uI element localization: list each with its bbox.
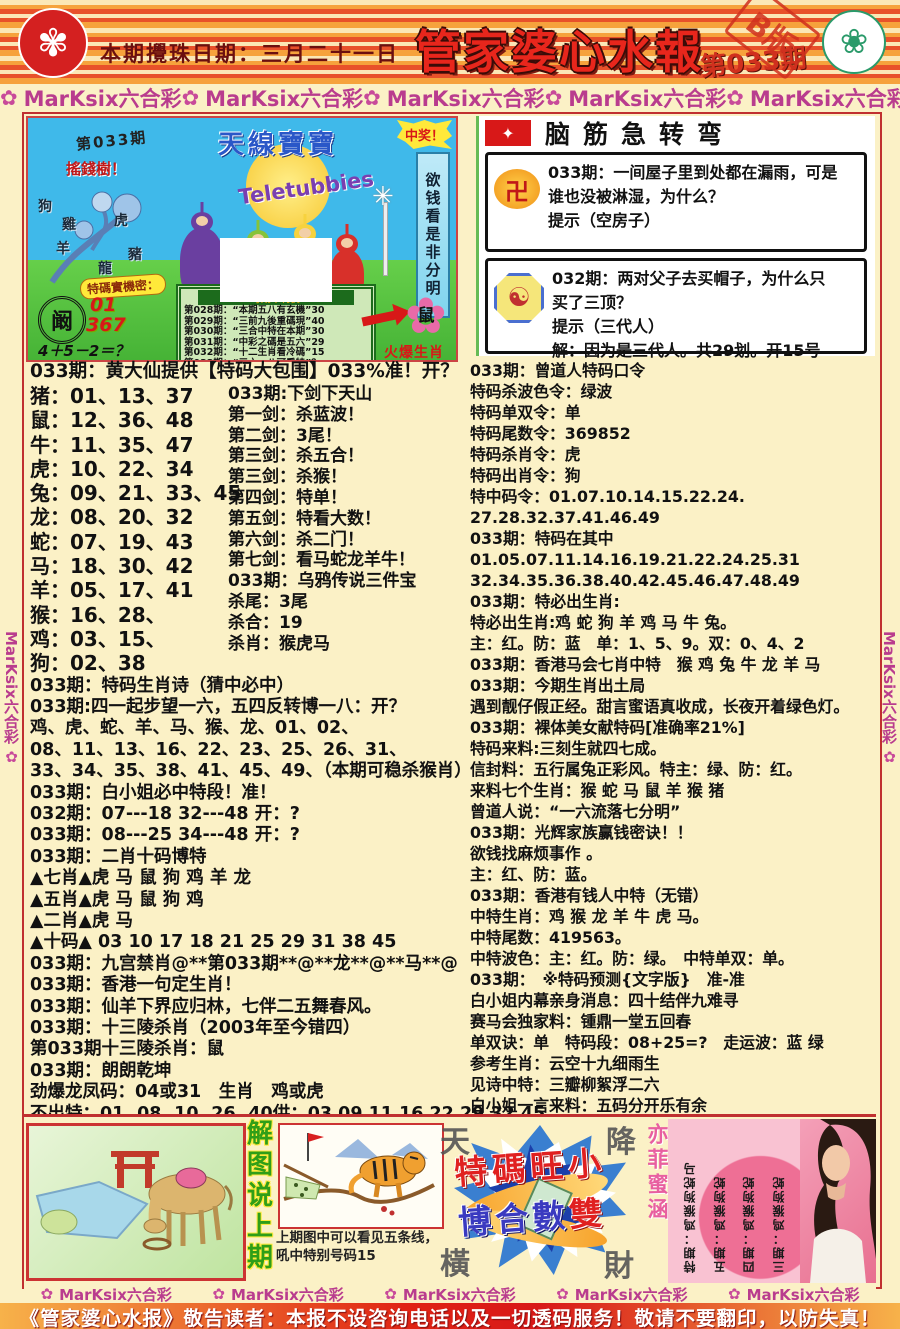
flower-icon: ✿ [881, 748, 899, 766]
slogan-starburst: 天 降 橫 財 特碼旺小 博合數雙 [440, 1119, 642, 1285]
plaque-rows: 第028期：“本期五八有玄機”30第029期：“三前九後重碼現”40第030期：… [184, 306, 368, 362]
tree-zodiac-char: 豬 [128, 244, 142, 264]
explain-char: 期 [247, 1243, 273, 1274]
zodiac-number-row: 鼠：12、36、48 [30, 408, 228, 432]
tip-line: 33、34、35、38、41、45、49、（本期可稳杀猴肖） [30, 761, 462, 782]
hongkong-emblem-icon: ✾ [18, 8, 88, 78]
riddle-text: 032期：两对父子去买帽子，为什么只买了三顶？提示（三代人）解：因为是三代人。共… [552, 267, 825, 345]
tip-line: 白小姐内幕亲身消息：四十结伴九难寻 [470, 990, 874, 1011]
rotated-tip-column: 三期：鸡猴狗蛇 [770, 1123, 787, 1273]
hot-zodiac-label: 火爆生肖 [384, 342, 444, 362]
paper-title: 管家婆心水報 [415, 16, 703, 82]
tip-line: 特码单双令：单 [470, 402, 874, 423]
tip-line: 白小姐一言来料：五码分开乐有余 [470, 1095, 874, 1116]
flower-icon: ✿ [40, 1285, 53, 1303]
flower-icon: ✿ [212, 1285, 225, 1303]
sword-row: 杀肖：猴虎马 [228, 634, 460, 655]
brand-item: MarKsix六合彩 ✿ [0, 631, 1, 766]
zodiac-number-row: 猴：16、28、 [30, 603, 228, 627]
tiger-drawing [280, 1125, 438, 1223]
brand-label: MarKsix六合彩 [568, 83, 726, 113]
zodiac-number-row: 羊：05、17、41 [30, 578, 228, 602]
tip-line: 来料七个生肖：猴 蛇 马 鼠 羊 猴 猪 [470, 780, 874, 801]
riddle-line: 提示（三代人） [552, 315, 825, 339]
tip-line: ▲二肖▲虎 马 [30, 911, 462, 932]
zodiac-number-row: 虎：10、22、34 [30, 457, 228, 481]
last-issue-picture-panel [278, 1123, 444, 1229]
sword-row: 033期：乌鸦传说三件宝 [228, 571, 460, 592]
sword-row: 第三剑：杀五合！ [228, 446, 460, 467]
tip-line: 033期：朗朗乾坤 [30, 1061, 462, 1082]
caption-line-1: 上期图中可以看见五条线， [276, 1229, 456, 1247]
swastika-coin-icon: 卍 [494, 169, 540, 209]
tip-line: 033期：白小姐必中特段！准！ [30, 783, 462, 804]
plaque-row: 第030期：“三合中特在本期”30 [184, 327, 368, 338]
yinyang-icon: ☯ [494, 273, 544, 323]
brand-item: ✿ MarKsix六合彩 [0, 83, 182, 113]
rotated-tips-panel: 三期：鸡猴狗蛇四期：鸡猴狗蛇五期：鸡猴狗蛇特期：鸡猴狗蛇马 [668, 1119, 800, 1283]
sword-row: 第三剑：杀猴！ [228, 467, 460, 488]
explain-char: 图 [247, 1150, 273, 1181]
plaque-row: 第032期：“十二生肖看冷碼”15 [184, 348, 368, 359]
riddle-line: 谁也没被淋湿，为什么？ [548, 185, 837, 209]
riddle-title: 脑筋急转弯 [545, 115, 735, 151]
tip-line: 第033期十三陵杀肖：鼠 [30, 1039, 462, 1060]
riddle-panel: ✦ 脑筋急转弯 卍 033期：一间屋子里到处都在漏雨，可是谁也没被淋湿，为什么？… [476, 116, 875, 356]
tip-line: 033期：二肖十码博特 [30, 847, 462, 868]
tip-line: 033期：仙羊下界应归林，七伴二五舞春风。 [30, 997, 462, 1018]
tip-line: 033期：裸体美女献特码[准确率21%] [470, 717, 874, 738]
tip-line: 劲爆龙凤码：04或31 生肖 鸡或虎 [30, 1082, 462, 1103]
tip-line: 遇到靓仔假正经。甜言蜜语真收成，长夜开着绿色灯。 [470, 696, 874, 717]
zodiac-number-row: 鸡：03、15、 [30, 627, 228, 651]
tip-line: 033期：香港马会七肖中特 猴 鸡 兔 牛 龙 羊 马 [470, 654, 874, 675]
tree-zodiac-char: 虎 [114, 210, 128, 230]
brand-band-bottom: ✿ MarKsix六合彩 ✿ MarKsix六合彩 ✿ MarKsix六合彩 ✿… [0, 1285, 900, 1303]
tip-line: 033期：08---25 34---48 开：? [30, 825, 462, 846]
seven-swords-list: 033期:下剑下天山第一剑：杀蓝波！第二剑：3尾！第三剑：杀五合！第三剑：杀猴！… [228, 384, 460, 676]
zodiac-number-row: 兔：09、21、33、45 [30, 481, 228, 505]
explain-last-issue-label: 解图说上期 [245, 1119, 275, 1274]
tip-line: 主：红。防：蓝 单：1、5、9。双：0、4、2 [470, 633, 874, 654]
sword-row: 033期:下剑下天山 [228, 384, 460, 405]
riddle-line: 买了三顶？ [552, 291, 825, 315]
zodiac-number-list: 猪：01、13、37鼠：12、36、48牛：11、35、47虎：10、22、34… [30, 384, 228, 676]
sword-row: 第二剑：3尾！ [228, 426, 460, 447]
blank-censor-box [220, 238, 332, 302]
brand-rail-left: MarKsix六合彩 ✿ MarKsix六合彩 ✿ MarKsix六合彩 ✿ M… [0, 112, 22, 1285]
tip-line: 欲钱找麻烦事作 。 [470, 843, 874, 864]
tip-line: 特码来料:三刻生就四七成。 [470, 738, 874, 759]
slogan-line-2b: 雙 [568, 1193, 608, 1234]
zodiac-number-row: 龙：08、20、32 [30, 505, 228, 529]
brand-item: ✿ MarKsix六合彩 [726, 83, 900, 113]
face [196, 216, 208, 226]
tip-line: ▲五肖▲虎 马 鼠 狗 鸡 [30, 890, 462, 911]
flower-icon: ✿ [384, 1285, 397, 1303]
seal-stamp: 阚 [38, 296, 86, 344]
masthead: ✾ ❀ 本期攪珠日期：三月二十一日 管家婆心水報 第033期 B版 [0, 0, 900, 84]
zodiac-and-sword-lists: 猪：01、13、37鼠：12、36、48牛：11、35、47虎：10、22、34… [30, 384, 462, 676]
tip-line: 32.34.35.36.38.40.42.45.46.47.48.49 [470, 570, 874, 591]
brand-item: ✿ MarKsix六合彩 [363, 83, 545, 113]
zodiac-number-row: 狗：02、38 [30, 651, 228, 675]
tip-line: 033期：香港有钱人中特（无错） [470, 885, 874, 906]
tip-line: 033期：九宫禁肖@**第033期**@**龙**@**马**@ [30, 954, 462, 975]
explain-char: 说 [247, 1181, 273, 1212]
content-frame: 天線寶寶 Teletubbies 第033期 中奖！ 欲钱看是非分明 搖錢樹！ … [22, 112, 882, 1289]
bottom-strip: 解图说上期 [24, 1114, 876, 1290]
brand-label: MarKsix六合彩 [387, 83, 545, 113]
riddle-line: 提示（空房子） [548, 209, 837, 233]
hot-zodiac-flower: ✿ 鼠 [400, 290, 452, 342]
corner-char-jiang: 降 [606, 1117, 636, 1161]
flower-icon: ✿ [3, 748, 21, 766]
slogan-line-2a: 博合數 [457, 1195, 570, 1242]
tree-zodiac-char: 龍 [98, 258, 112, 278]
tip-line: 033期：特码生肖诗（猜中必中） [30, 676, 462, 697]
tip-line: 单双诀：单 特码段：08+25=? 走运波：蓝 绿 [470, 1032, 874, 1053]
newspaper-page: ✾ ❀ 本期攪珠日期：三月二十一日 管家婆心水報 第033期 B版 ✿ MarK… [0, 0, 900, 1329]
seal-number-2: 367 [86, 314, 126, 336]
riddle-box-current: 卍 033期：一间屋子里到处都在漏雨，可是谁也没被淋湿，为什么？提示（空房子） [485, 152, 867, 252]
sword-row: 杀合：19 [228, 613, 460, 634]
tip-line: 033期：香港一句定生肖！ [30, 975, 462, 996]
number-formula: 4＋5－2＝？ [38, 340, 129, 361]
slogan-line-2: 博合數雙 [457, 1186, 608, 1244]
zodiac-number-row: 牛：11、35、47 [30, 433, 228, 457]
tip-line: 中特生肖：鸡 猴 龙 羊 牛 虎 马。 [470, 906, 874, 927]
tip-line: 08、11、13、16、22、23、25、26、31、 [30, 740, 462, 761]
riddle-picture-panel [26, 1123, 246, 1281]
teletubbies-panel: 天線寶寶 Teletubbies 第033期 中奖！ 欲钱看是非分明 搖錢樹！ … [26, 116, 458, 362]
model-photo [800, 1119, 876, 1283]
tip-line: 特码杀肖令：虎 [470, 444, 874, 465]
sword-row: 第一剑：杀蓝波！ [228, 405, 460, 426]
rotated-tip-column: 五期：鸡猴狗蛇 [711, 1123, 728, 1273]
tip-line: 特码尾数令：369852 [470, 423, 874, 444]
left-tip-lines: 033期：特码生肖诗（猜中必中）033期:四一起步望一六，五四反转博一八：开？鸡… [30, 676, 462, 1126]
tip-line: ▲十码▲ 03 10 17 18 21 25 29 31 38 45 [30, 932, 462, 953]
left-tips-column: 033期：黄大仙提供【特码大包围】033%准！开？ 猪：01、13、37鼠：12… [30, 360, 462, 1125]
disclaimer-text: 《管家婆心水报》敬告读者：本报不设咨询电话以及一切透码服务！敬请不要翻印，以防失… [19, 1302, 880, 1329]
win-starburst: 中奖！ [397, 120, 452, 149]
sword-row: 杀尾：3尾 [228, 592, 460, 613]
tip-line: 033期： ※特码预测{文字版} 准-准 [470, 969, 874, 990]
horse-drawing [29, 1126, 237, 1272]
picture-caption: 上期图中可以看见五条线， 吼中特别号码15 [276, 1229, 456, 1265]
tree-zodiac-char: 狗 [38, 196, 52, 216]
riddle-text: 033期：一间屋子里到处都在漏雨，可是谁也没被淋湿，为什么？提示（空房子） [548, 161, 837, 243]
tip-line: 27.28.32.37.41.46.49 [470, 507, 874, 528]
tip-line: 032期：07---18 32---48 开：? [30, 804, 462, 825]
brand-band-top: ✿ MarKsix六合彩 ✿ MarKsix六合彩 ✿ MarKsix六合彩 ✿… [0, 84, 900, 112]
girl-name-label: 亦菲蜜涵 [642, 1123, 668, 1283]
show-title: 天線寶寶 [218, 124, 338, 161]
tip-line: 曾道人说：“一六流落七分明” [470, 801, 874, 822]
tip-line: 01.05.07.11.14.16.19.21.22.24.25.31 [470, 549, 874, 570]
brand-label: MarKsix六合彩 [879, 631, 900, 744]
corner-char-cai: 財 [604, 1241, 634, 1285]
brand-item: MarKsix六合彩 ✿ [1, 631, 22, 766]
explain-char: 上 [247, 1212, 273, 1243]
tree-zodiac-char: 羊 [56, 238, 70, 258]
side-banner-text: 欲钱看是非分明 [423, 172, 444, 298]
face [299, 228, 311, 238]
tip-line: 033期：特码在其中 [470, 528, 874, 549]
zodiac-number-row: 猪：01、13、37 [30, 384, 228, 408]
tip-line: 赛马会独家料：锺鼎一堂五回春 [470, 1011, 874, 1032]
model-silhouette [800, 1119, 876, 1283]
explain-char: 解 [247, 1119, 273, 1150]
flower-icon: ✿ [363, 86, 381, 110]
tip-line: 中特尾数：419563。 [470, 927, 874, 948]
tip-line: 033期:四一起步望一六，五四反转博一八：开？ [30, 697, 462, 718]
tip-line: 033期：特必出生肖: [470, 591, 874, 612]
hot-zodiac-char: 鼠 [400, 290, 452, 342]
tip-line: 033期：十三陵杀肖（2003年至今错四） [30, 1018, 462, 1039]
brand-label: MarKsix六合彩 [24, 83, 182, 113]
tip-line: 主：红、防：蓝。 [470, 864, 874, 885]
riddle-header: ✦ 脑筋急转弯 [479, 116, 875, 150]
tip-line: 特必出生肖:鸡 蛇 狗 羊 鸡 马 牛 兔。 [470, 612, 874, 633]
riddle-line: 033期：一间屋子里到处都在漏雨，可是 [548, 161, 837, 185]
seal-number-1: 01 [90, 294, 116, 316]
tip-line: 参考生肖：云空十九细雨生 [470, 1053, 874, 1074]
flower-icon: ✿ [0, 86, 18, 110]
flower-icon: ✿ [556, 1285, 569, 1303]
rotated-tip-column: 特期：鸡猴狗蛇马 [681, 1123, 698, 1273]
brand-item: MarKsix六合彩 ✿ [879, 631, 900, 766]
tip-line: 中特波色：主：红。防：绿。 中特单双：单。 [470, 948, 874, 969]
tree-zodiac-char: 雞 [62, 214, 76, 234]
tip-line: 特码出肖令：狗 [470, 465, 874, 486]
rotated-tip-column: 四期：鸡猴狗蛇 [740, 1123, 757, 1273]
tip-line: 信封料：五行属兔正彩风。特主：绿、防：红。 [470, 759, 874, 780]
tip-line: 033期：光辉家族赢钱密诀！！ [470, 822, 874, 843]
star-badge-icon: ✦ [485, 120, 531, 146]
riddle-line: 032期：两对父子去买帽子，为什么只 [552, 267, 825, 291]
sword-row: 第四剑：特单！ [228, 488, 460, 509]
brand-item: ✿ MarKsix六合彩 [545, 83, 727, 113]
panel-issue-number: 第033期 [75, 126, 148, 154]
sword-row: 第七剑：看马蛇龙羊牛！ [228, 550, 460, 571]
macau-emblem-icon: ❀ [822, 10, 886, 74]
sword-row: 第六剑：杀二门！ [228, 530, 460, 551]
tip-line: 特中码令：01.07.10.14.15.22.24. [470, 486, 874, 507]
flower-icon: ✿ [182, 86, 200, 110]
plaque-row: 第028期：“本期五八有玄機”30 [184, 306, 368, 317]
left-column-heading: 033期：黄大仙提供【特码大包围】033%准！开？ [30, 360, 462, 384]
right-tips-column: 033期：曾道人特码口令特码杀波色令：绿波特码单双令：单特码尾数令：369852… [470, 360, 874, 1116]
flower-icon: ✿ [728, 1285, 741, 1303]
corner-char-heng: 橫 [440, 1239, 470, 1283]
tip-line: 见诗中特：三瓣柳絮浮二六 [470, 1074, 874, 1095]
flower-icon: ✿ [545, 86, 563, 110]
tip-line: 特码杀波色令：绿波 [470, 381, 874, 402]
tip-line: ▲七肖▲虎 马 鼠 狗 鸡 羊 龙 [30, 868, 462, 889]
windmill-pole [383, 202, 388, 276]
tip-line: 鸡、虎、蛇、羊、马、猴、龙、01、02、 [30, 718, 462, 739]
flower-icon: ✿ [726, 86, 744, 110]
windmill-icon: ✳ [372, 182, 394, 212]
zodiac-number-row: 马：18、30、42 [30, 554, 228, 578]
riddle-box-previous: ☯ 032期：两对父子去买帽子，为什么只买了三顶？提示（三代人）解：因为是三代人… [485, 258, 867, 354]
caption-line-2: 吼中特别号码15 [276, 1247, 456, 1265]
face [341, 238, 353, 248]
sword-row: 第五剑：特看大数！ [228, 509, 460, 530]
tip-line: 033期：曾道人特码口令 [470, 360, 874, 381]
footer-disclaimer: 《管家婆心水报》敬告读者：本报不设咨询电话以及一切透码服务！敬请不要翻印，以防失… [0, 1303, 900, 1329]
brand-label: MarKsix六合彩 [205, 83, 363, 113]
brand-label: MarKsix六合彩 [0, 631, 1, 744]
zodiac-number-row: 蛇：07、19、43 [30, 530, 228, 554]
tip-line: 033期：今期生肖出土局 [470, 675, 874, 696]
draw-date: 本期攪珠日期：三月二十一日 [100, 38, 399, 68]
brand-label: MarKsix六合彩 [750, 83, 900, 113]
brand-item: ✿ MarKsix六合彩 [182, 83, 364, 113]
brand-label: MarKsix六合彩 [1, 631, 22, 744]
